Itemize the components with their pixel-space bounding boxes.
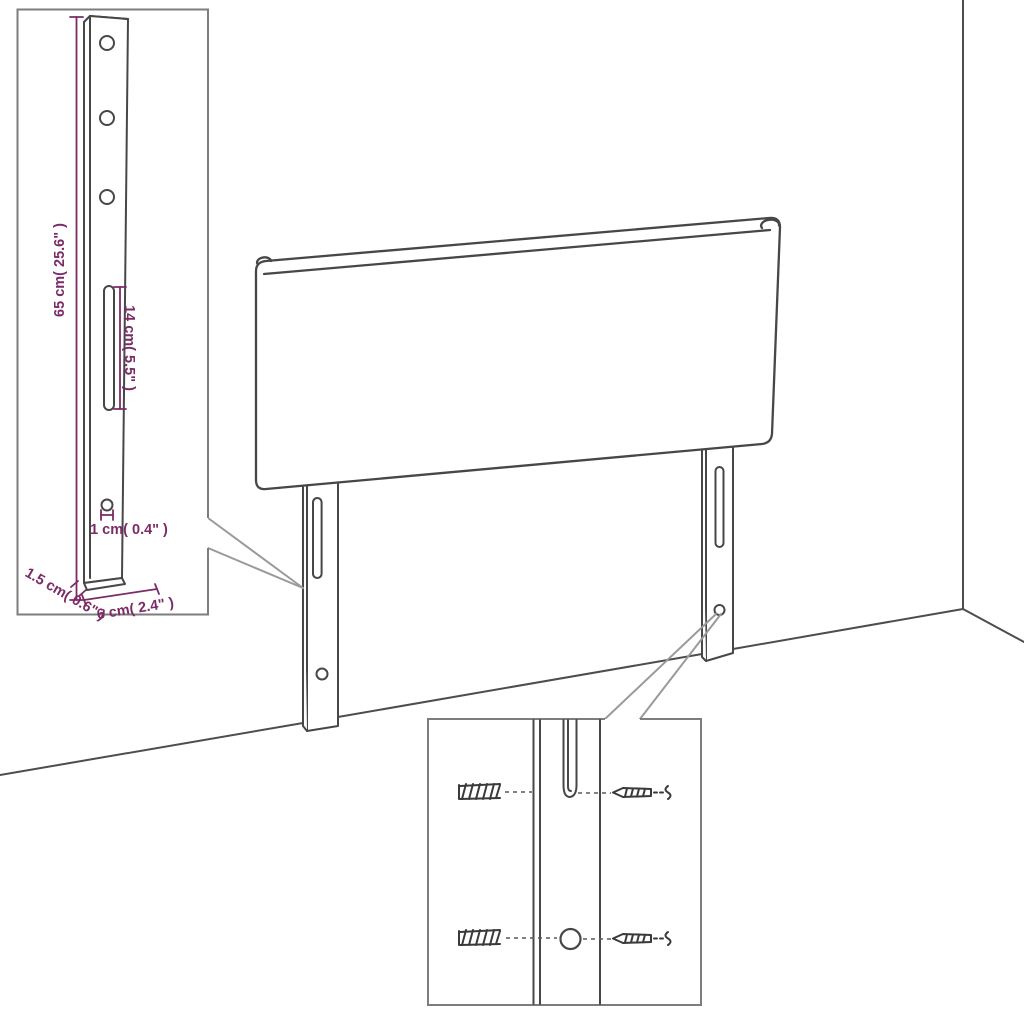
dimension-hole-label: 1 cm( 0.4" ) bbox=[90, 522, 168, 538]
dimension-slot-label: 14 cm( 5.5" ) bbox=[121, 305, 137, 391]
small-hole bbox=[102, 500, 113, 511]
headboard-dimension-drawing: 65 cm( 25.6" ) 14 cm( 5.5" ) 1 cm( 0.4" … bbox=[0, 0, 1024, 1024]
left-leg bbox=[303, 478, 338, 731]
leg-slot bbox=[104, 286, 114, 410]
headboard bbox=[256, 218, 780, 489]
leg-profile bbox=[84, 16, 128, 590]
mounting-hole bbox=[100, 36, 114, 50]
left-leg-slot bbox=[313, 498, 322, 578]
hardware-detail-inset bbox=[428, 719, 701, 1005]
dimension-height-label: 65 cm( 25.6" ) bbox=[52, 223, 68, 317]
headboard-panel bbox=[256, 218, 780, 489]
callout-lines-left bbox=[208, 518, 303, 588]
mounting-hole bbox=[100, 190, 114, 204]
floor-line-right bbox=[963, 609, 1024, 642]
left-leg-hole bbox=[317, 669, 328, 680]
product-diagram: 65 cm( 25.6" ) 14 cm( 5.5" ) 1 cm( 0.4" … bbox=[0, 0, 1024, 1024]
callout-line bbox=[605, 614, 716, 719]
right-leg-slot bbox=[716, 467, 724, 547]
mounting-hole bbox=[100, 111, 114, 125]
callout-line bbox=[640, 614, 721, 719]
leg-detail-inset: 65 cm( 25.6" ) 14 cm( 5.5" ) 1 cm( 0.4" … bbox=[18, 10, 209, 625]
right-leg bbox=[702, 442, 733, 661]
